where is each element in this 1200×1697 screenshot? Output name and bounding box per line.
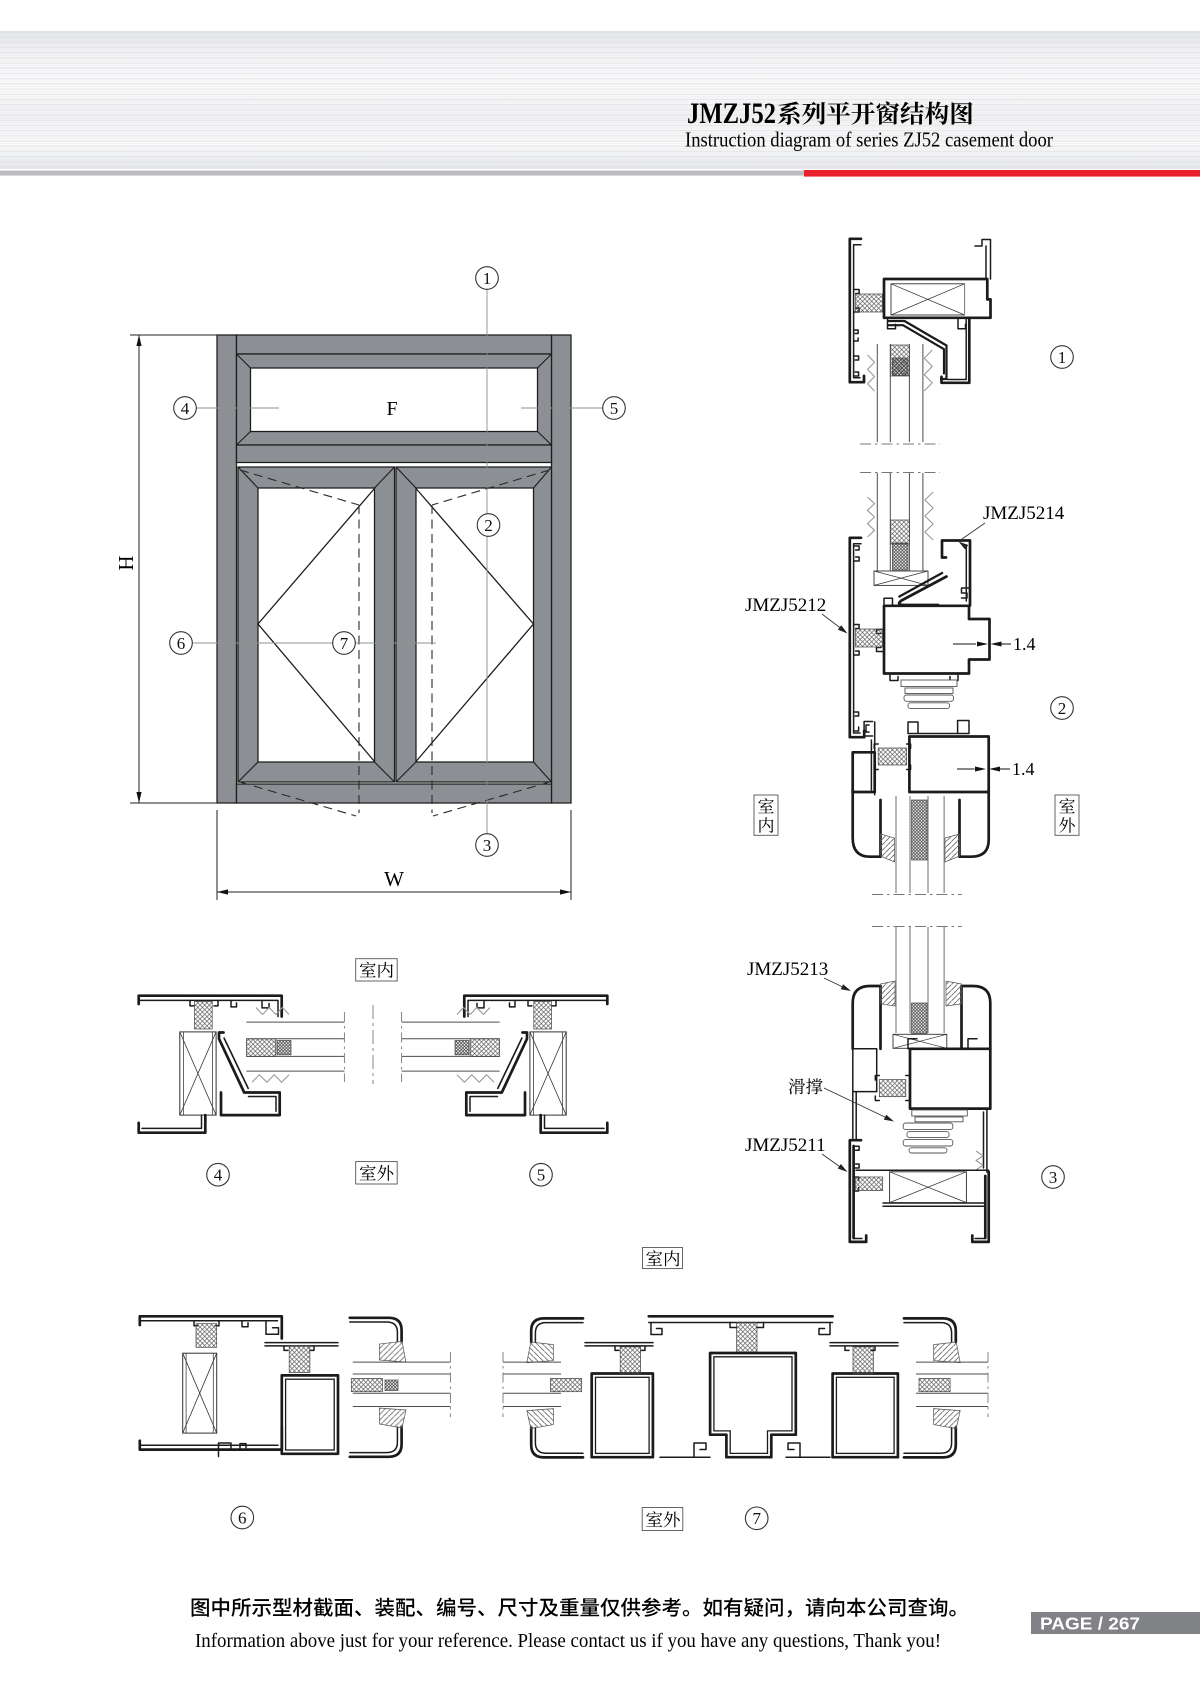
svg-text:H: H [114, 555, 138, 570]
svg-text:JMZJ5213: JMZJ5213 [747, 959, 828, 980]
svg-text:JMZJ52: JMZJ52 [687, 97, 776, 130]
svg-text:JMZJ5212: JMZJ5212 [745, 595, 826, 616]
svg-text:7: 7 [340, 634, 349, 653]
svg-text:Information above just for you: Information above just for your referenc… [195, 1630, 941, 1652]
svg-text:JMZJ5211: JMZJ5211 [745, 1135, 826, 1156]
svg-text:JMZJ5214: JMZJ5214 [983, 503, 1065, 524]
svg-text:6: 6 [238, 1508, 247, 1527]
svg-text:7: 7 [752, 1509, 761, 1528]
svg-text:PAGE / 267: PAGE / 267 [1040, 1614, 1140, 1634]
svg-text:Instruction diagram of series: Instruction diagram of series ZJ52 casem… [685, 128, 1053, 152]
svg-text:W: W [384, 867, 404, 891]
svg-text:3: 3 [1049, 1168, 1058, 1187]
svg-text:5: 5 [537, 1166, 546, 1185]
svg-text:6: 6 [177, 634, 186, 653]
svg-text:1.4: 1.4 [1012, 759, 1035, 779]
svg-text:1: 1 [1058, 348, 1067, 367]
svg-text:3: 3 [483, 836, 492, 855]
svg-text:F: F [386, 398, 397, 420]
svg-text:2: 2 [1058, 699, 1067, 718]
svg-text:4: 4 [214, 1166, 223, 1185]
svg-text:1: 1 [483, 269, 492, 288]
svg-text:2: 2 [484, 516, 493, 535]
svg-text:5: 5 [610, 399, 619, 418]
svg-text:1.4: 1.4 [1013, 634, 1036, 654]
svg-text:4: 4 [181, 399, 190, 418]
